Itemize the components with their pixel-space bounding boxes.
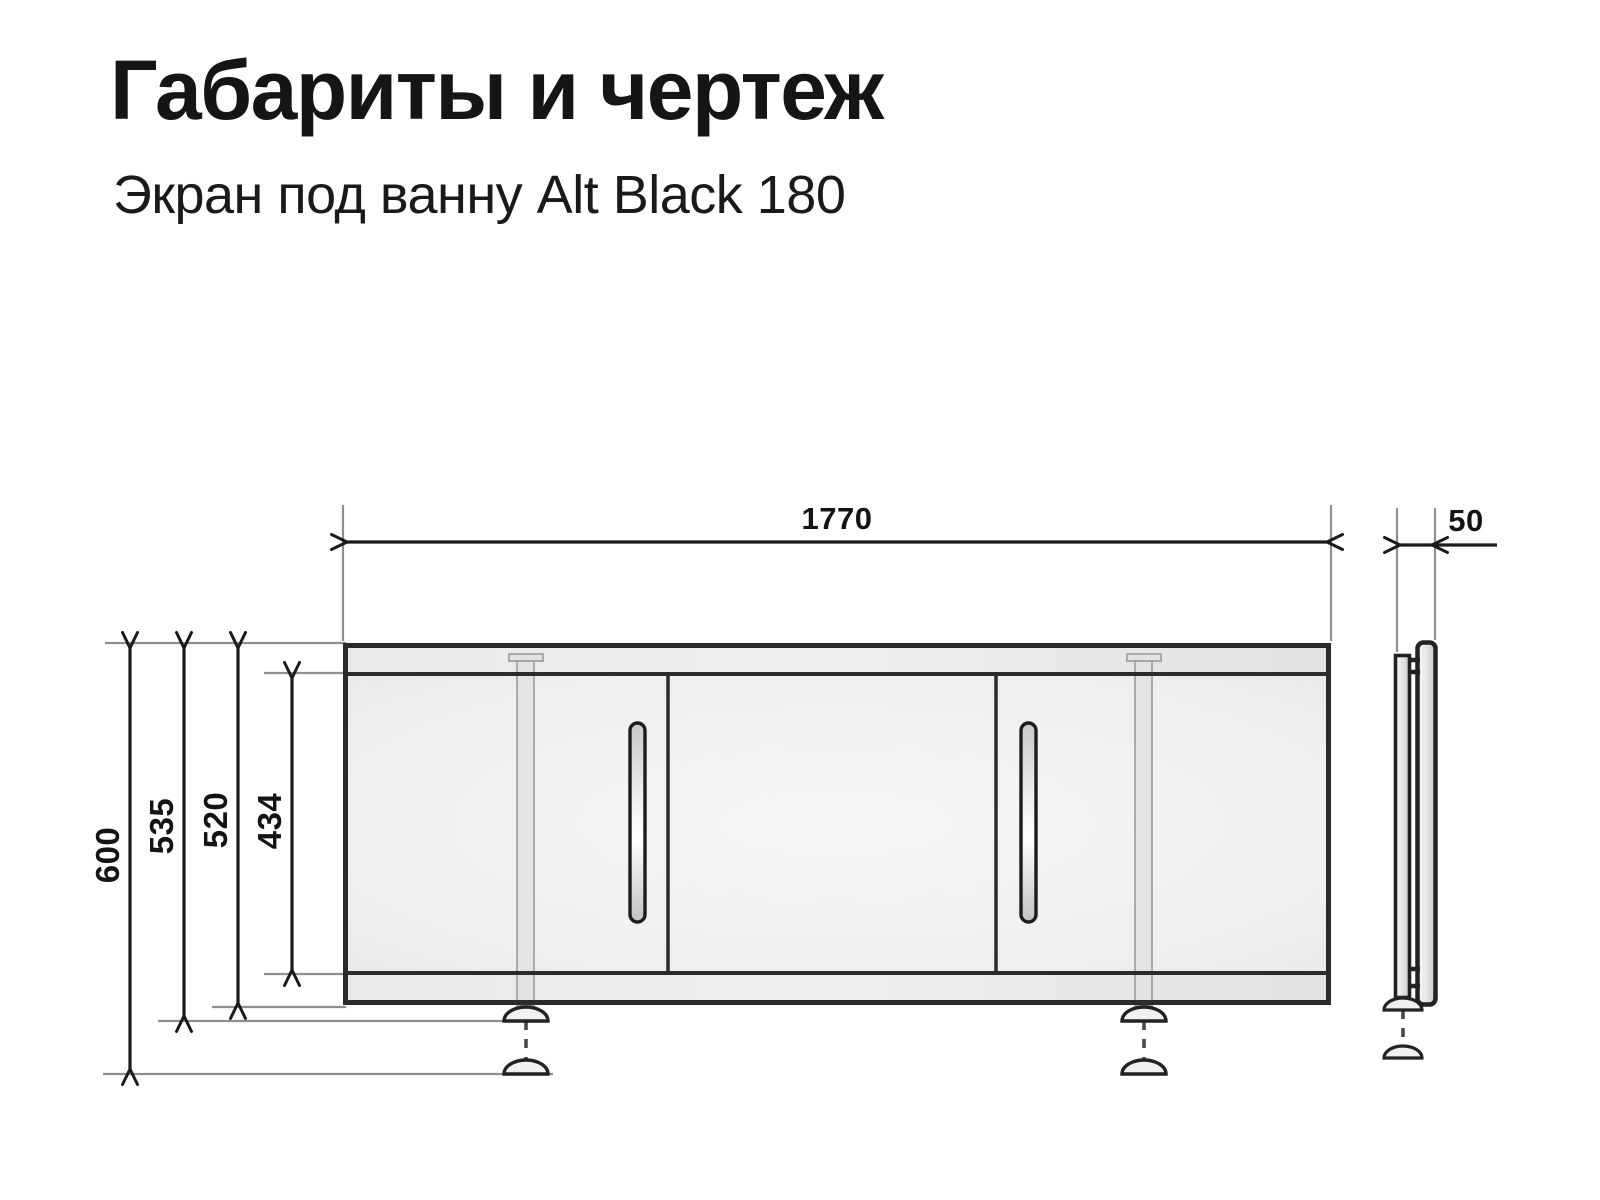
front-view [346,646,1329,1075]
side-view [1384,643,1436,1059]
side-foot [1384,998,1422,1058]
side-panel-profile [1418,643,1436,1005]
dim-label-height-inner: 434 [251,793,289,850]
dim-label-height-panel: 520 [197,792,235,849]
side-foot-dome-extended [1384,1046,1422,1058]
drawing-canvas: Габариты и чертеж Экран под ванну Alt Bl… [0,0,1600,1200]
technical-drawing [0,0,1600,1200]
dim-label-height-overall: 600 [89,827,127,884]
front-panel-inner [346,675,1328,972]
foot-dome-right-extended [1122,1060,1166,1074]
handle-slot-left [630,723,645,922]
side-leg-profile [1396,656,1410,998]
side-foot-dome-retracted [1384,998,1422,1010]
handle-slot-right [1021,723,1036,922]
dim-label-width: 1770 [802,501,873,537]
foot-dome-right-retracted [1122,1007,1166,1021]
foot-dome-left-extended [504,1060,548,1074]
front-feet [504,1007,1166,1074]
dim-label-depth: 50 [1448,503,1483,539]
dim-label-height-with-feet: 535 [143,798,181,855]
foot-dome-left-retracted [504,1007,548,1021]
